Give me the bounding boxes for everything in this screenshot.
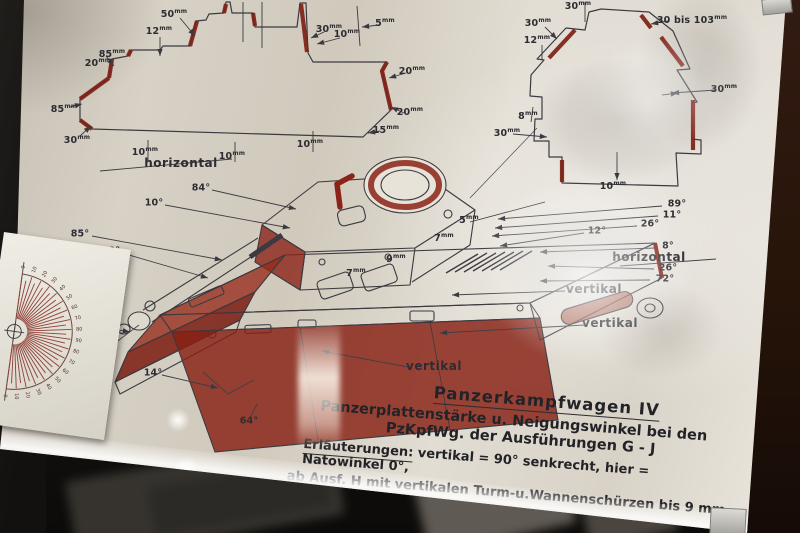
plate-thickness-mark: 7mm — [434, 232, 454, 244]
protractor-number: 10 — [13, 393, 19, 400]
protractor-number: 20 — [24, 391, 31, 398]
unit-suffix: mm — [393, 253, 406, 260]
angle-label: 11° — [663, 210, 682, 221]
unit-suffix: mm — [159, 25, 172, 32]
angle-label: 72° — [656, 274, 675, 285]
thickness-label: 10mm — [334, 28, 361, 40]
unit-suffix: mm — [386, 124, 399, 131]
thickness-label: 30mm — [494, 127, 521, 139]
unit-suffix: mm — [353, 267, 366, 274]
plate-thickness-mark: 7mm — [346, 267, 366, 279]
unit-suffix: mm — [232, 150, 245, 157]
photo-of-armor-diagram-poster: { "poster": { "subject": "Panzerkampfwag… — [0, 0, 800, 533]
angle-label: 26° — [641, 219, 660, 230]
thickness-label: 30mm — [711, 83, 738, 95]
thickness-label: 85mm — [51, 103, 78, 115]
plate-thickness-mark: 9mm — [386, 253, 406, 265]
thickness-label: 30mm — [525, 17, 552, 29]
protractor-number: 30 — [50, 276, 59, 285]
thickness-label: 30 bis 103mm — [657, 14, 727, 26]
unit-suffix: mm — [724, 83, 737, 90]
angle-label: 10° — [145, 198, 164, 209]
plate-thickness-mark: 5mm — [459, 214, 479, 226]
thickness-label: 15mm — [373, 124, 400, 136]
angle-label: 64° — [240, 416, 259, 427]
protractor-number: 70 — [67, 358, 75, 366]
unit-suffix: mm — [145, 146, 158, 153]
protractor-number: 80 — [76, 327, 83, 333]
unit-suffix: mm — [77, 134, 90, 141]
angle-label: 14° — [144, 368, 163, 379]
unit-suffix: mm — [174, 8, 187, 15]
thickness-label: 20mm — [399, 65, 426, 77]
thickness-label: 10mm — [297, 138, 324, 150]
angle-label: 12° — [588, 226, 607, 237]
thickness-label: 20mm — [85, 57, 112, 69]
unit-suffix: mm — [441, 232, 454, 239]
protractor-number: 50 — [53, 376, 62, 385]
thickness-label: 5mm — [375, 17, 395, 29]
angle-label: 89° — [668, 199, 687, 210]
reference-word-label: vertikal — [582, 316, 638, 330]
thickness-label: 10mm — [600, 180, 627, 192]
unit-suffix: mm — [538, 17, 551, 24]
protractor-number: 50 — [65, 293, 74, 301]
unit-suffix: mm — [507, 127, 520, 134]
unit-suffix: mm — [714, 14, 727, 21]
thickness-label: 50mm — [161, 8, 188, 20]
thickness-label: 30mm — [565, 0, 592, 12]
thickness-label: 10mm — [219, 150, 246, 162]
thickness-label: 20mm — [397, 106, 424, 118]
thickness-label: 30mm — [64, 134, 91, 146]
reference-word-label: vertikal — [566, 282, 622, 296]
protractor-number: 10 — [31, 266, 39, 274]
reference-word-label: horizontal — [144, 156, 218, 170]
protractor-number: 0 — [2, 394, 8, 398]
unit-suffix: mm — [98, 57, 111, 64]
thickness-label: 12mm — [146, 25, 173, 37]
unit-suffix: mm — [382, 17, 395, 24]
protractor-number: 0 — [21, 265, 27, 269]
protractor-number: 60 — [61, 368, 70, 377]
unit-suffix: mm — [578, 0, 591, 7]
thickness-label: 12mm — [524, 34, 551, 46]
thickness-label: 8mm — [518, 110, 538, 122]
angle-label: 85° — [71, 229, 90, 240]
unit-suffix: mm — [64, 103, 77, 110]
protractor-number: 90 — [75, 338, 82, 345]
protractor-number: 20 — [41, 270, 49, 278]
protractor-number: 40 — [59, 284, 68, 293]
unit-suffix: mm — [466, 214, 479, 221]
protractor-number: 70 — [74, 315, 81, 322]
angle-label: 26° — [659, 263, 678, 274]
protractor-number: 60 — [71, 304, 79, 312]
protractor-number: 40 — [44, 383, 52, 392]
turret-profile-diagram — [470, 2, 716, 198]
unit-suffix: mm — [310, 138, 323, 145]
unit-suffix: mm — [537, 34, 550, 41]
protractor-number: 80 — [72, 348, 80, 356]
binder-clip — [709, 507, 746, 533]
unit-suffix: mm — [613, 180, 626, 187]
reference-word-label: vertikal — [406, 359, 462, 373]
unit-suffix: mm — [525, 110, 538, 117]
protractor-number: 30 — [34, 388, 42, 396]
unit-suffix: mm — [410, 106, 423, 113]
angle-label: 84° — [192, 183, 211, 194]
unit-suffix: mm — [347, 28, 360, 35]
unit-suffix: mm — [412, 65, 425, 72]
unit-suffix: mm — [112, 48, 125, 55]
